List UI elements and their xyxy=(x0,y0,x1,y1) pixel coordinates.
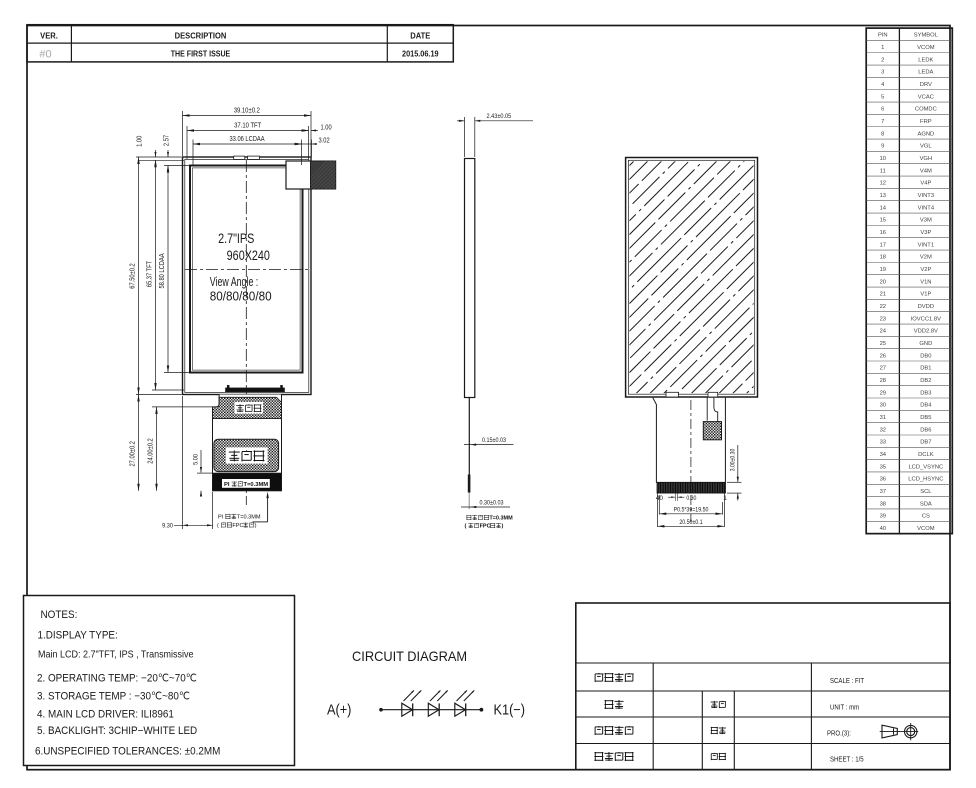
svg-text:0.30±0.03: 0.30±0.03 xyxy=(480,500,505,507)
svg-text:DESCRIPTION: DESCRIPTION xyxy=(175,31,227,41)
svg-text:19: 19 xyxy=(880,267,886,273)
svg-text:12: 12 xyxy=(880,181,886,187)
svg-text:2015.06.19: 2015.06.19 xyxy=(402,49,439,59)
svg-text:V2M: V2M xyxy=(920,255,932,261)
svg-text:V3M: V3M xyxy=(920,218,932,224)
svg-text:23: 23 xyxy=(880,316,886,322)
svg-text:10: 10 xyxy=(880,156,886,162)
svg-text:DB6: DB6 xyxy=(920,427,931,433)
svg-text:VCOM: VCOM xyxy=(917,526,935,532)
svg-text:SHEET : 1/5: SHEET : 1/5 xyxy=(830,756,864,764)
svg-text:SCALE : FIT: SCALE : FIT xyxy=(830,677,865,685)
svg-text:35: 35 xyxy=(880,464,886,470)
svg-text:39.10±0.2: 39.10±0.2 xyxy=(234,107,261,115)
svg-text:VINT3: VINT3 xyxy=(918,193,934,199)
svg-text:#0: #0 xyxy=(39,49,51,61)
svg-text:3.02: 3.02 xyxy=(319,137,331,145)
svg-text:CIRCUIT DIAGRAM: CIRCUIT DIAGRAM xyxy=(352,649,467,664)
svg-text:39: 39 xyxy=(880,514,886,520)
svg-text:VCOM: VCOM xyxy=(917,45,935,51)
svg-text:V4P: V4P xyxy=(920,181,931,187)
svg-text:8: 8 xyxy=(881,131,884,137)
svg-text:V2P: V2P xyxy=(920,267,931,273)
svg-text:THE FIRST ISSUE: THE FIRST ISSUE xyxy=(171,49,231,59)
svg-text:IOVCC1.8V: IOVCC1.8V xyxy=(911,316,941,322)
svg-text:DB2: DB2 xyxy=(920,378,931,384)
svg-text:SDA: SDA xyxy=(920,501,932,507)
svg-text:GND: GND xyxy=(919,341,932,347)
svg-text:6.UNSPECIFIED TOLERANCES: ±0.2: 6.UNSPECIFIED TOLERANCES: ±0.2MM xyxy=(35,746,220,758)
svg-text:FRP: FRP xyxy=(920,119,932,125)
svg-text:58.80 LCDAA: 58.80 LCDAA xyxy=(159,253,167,289)
svg-text:5: 5 xyxy=(881,94,884,100)
svg-text:37.10 TFT: 37.10 TFT xyxy=(234,122,261,130)
svg-text:VGL: VGL xyxy=(920,144,932,150)
svg-text:SCL: SCL xyxy=(920,489,932,495)
svg-text:37: 37 xyxy=(880,489,886,495)
svg-text:15: 15 xyxy=(880,218,886,224)
svg-text:VDD2.8V: VDD2.8V xyxy=(914,329,938,335)
svg-text:T=0.3MM: T=0.3MM xyxy=(243,482,268,488)
svg-text:65.37 TFT: 65.37 TFT xyxy=(146,261,154,287)
svg-text:VINT4: VINT4 xyxy=(918,205,935,211)
svg-text:DB1: DB1 xyxy=(920,366,931,372)
svg-text:2.43±0.05: 2.43±0.05 xyxy=(487,113,512,121)
svg-text:29: 29 xyxy=(880,390,886,396)
svg-text:COMDC: COMDC xyxy=(915,107,937,113)
svg-text:UNIT : mm: UNIT : mm xyxy=(830,704,859,712)
svg-text:(: ( xyxy=(217,523,219,529)
svg-text:3. STORAGE TEMP : −30℃~80℃: 3. STORAGE TEMP : −30℃~80℃ xyxy=(37,691,190,703)
svg-text:24: 24 xyxy=(880,329,887,335)
svg-text:2.7"IPS: 2.7"IPS xyxy=(218,231,254,246)
svg-text:NOTES:: NOTES: xyxy=(41,610,78,622)
svg-text:1.00: 1.00 xyxy=(321,124,333,132)
svg-text:VINT1: VINT1 xyxy=(918,242,934,248)
svg-text:34: 34 xyxy=(880,452,887,458)
svg-text:PI: PI xyxy=(218,515,224,521)
svg-text:2.57: 2.57 xyxy=(163,135,171,147)
svg-text:7: 7 xyxy=(881,119,884,125)
svg-text:27.00±0.2: 27.00±0.2 xyxy=(129,441,137,467)
svg-text:33: 33 xyxy=(880,440,886,446)
svg-text:SYMBOL: SYMBOL xyxy=(914,33,939,39)
svg-text:LCD_VSYNC: LCD_VSYNC xyxy=(908,464,943,470)
svg-text:View Angle :: View Angle : xyxy=(210,275,258,289)
svg-text:V1P: V1P xyxy=(920,292,931,298)
svg-text:0.30: 0.30 xyxy=(686,495,696,502)
svg-text:1.00: 1.00 xyxy=(136,135,144,147)
svg-text:20.50±0.1: 20.50±0.1 xyxy=(679,519,702,526)
svg-text:CS: CS xyxy=(922,514,930,520)
svg-text:T=0.3MM: T=0.3MM xyxy=(237,515,261,521)
svg-text:6: 6 xyxy=(881,107,884,113)
svg-text:5.00: 5.00 xyxy=(192,454,200,465)
svg-text:PIN: PIN xyxy=(878,33,888,39)
svg-text:9: 9 xyxy=(881,144,884,150)
svg-text:30: 30 xyxy=(880,403,886,409)
svg-text:4. MAIN LCD DRIVER: ILI8961: 4. MAIN LCD DRIVER: ILI8961 xyxy=(37,709,174,721)
svg-text:40: 40 xyxy=(880,526,886,532)
svg-text:1: 1 xyxy=(723,495,727,502)
svg-text:960X240: 960X240 xyxy=(227,248,270,263)
svg-text:21: 21 xyxy=(880,292,886,298)
svg-text:AGND: AGND xyxy=(917,131,934,137)
svg-text:27: 27 xyxy=(880,366,886,372)
svg-text:LEDK: LEDK xyxy=(918,57,933,63)
svg-text:24.00±0.2: 24.00±0.2 xyxy=(147,438,155,464)
svg-text:26: 26 xyxy=(880,353,886,359)
svg-text:1.DISPLAY TYPE:: 1.DISPLAY TYPE: xyxy=(38,630,118,642)
svg-text:Main LCD: 2.7"TFT, IPS , Trans: Main LCD: 2.7"TFT, IPS , Transmissive xyxy=(38,649,194,661)
svg-text:V3P: V3P xyxy=(920,230,931,236)
svg-text:VGH: VGH xyxy=(920,156,933,162)
svg-text:20: 20 xyxy=(880,279,886,285)
svg-text:13: 13 xyxy=(880,193,886,199)
svg-text:): ) xyxy=(501,524,503,530)
svg-text:80/80/80/80: 80/80/80/80 xyxy=(210,289,272,304)
svg-text:0.15±0.03: 0.15±0.03 xyxy=(482,438,507,445)
svg-text:14: 14 xyxy=(880,205,887,211)
svg-text:PI: PI xyxy=(224,482,230,488)
svg-text:67.50±0.2: 67.50±0.2 xyxy=(129,263,137,289)
svg-text:VCAC: VCAC xyxy=(918,94,934,100)
svg-text:18: 18 xyxy=(880,255,886,261)
svg-text:T=0.3MM: T=0.3MM xyxy=(489,516,513,522)
svg-text:3: 3 xyxy=(881,70,884,76)
svg-text:11: 11 xyxy=(880,168,886,174)
svg-text:DB4: DB4 xyxy=(920,403,932,409)
svg-text:V4M: V4M xyxy=(920,168,932,174)
svg-text:32: 32 xyxy=(880,427,886,433)
svg-text:25: 25 xyxy=(880,341,886,347)
svg-text:A(+): A(+) xyxy=(327,702,351,718)
svg-text:DRV: DRV xyxy=(920,82,932,88)
svg-text:LCD_HSYNC: LCD_HSYNC xyxy=(908,477,943,483)
svg-text:36: 36 xyxy=(880,477,886,483)
svg-text:P0.5*39=19.50: P0.5*39=19.50 xyxy=(674,507,709,514)
svg-text:(: ( xyxy=(465,524,467,530)
svg-text:DCLK: DCLK xyxy=(918,452,934,458)
svg-text:FPC: FPC xyxy=(480,524,491,530)
svg-text:FPC: FPC xyxy=(232,523,243,529)
svg-text:17: 17 xyxy=(880,242,886,248)
svg-text:31: 31 xyxy=(880,415,886,421)
svg-text:DB0: DB0 xyxy=(920,353,931,359)
svg-text:2. OPERATING TEMP: −20℃~70℃: 2. OPERATING TEMP: −20℃~70℃ xyxy=(37,673,197,685)
svg-text:38: 38 xyxy=(880,501,886,507)
svg-text:1: 1 xyxy=(881,45,884,51)
svg-text:3.00±0.30: 3.00±0.30 xyxy=(730,449,737,472)
svg-text:9.30: 9.30 xyxy=(162,522,173,530)
svg-text:DVDD: DVDD xyxy=(918,304,934,310)
svg-text:VER.: VER. xyxy=(40,31,58,41)
svg-text:DB7: DB7 xyxy=(920,440,931,446)
svg-text:): ) xyxy=(255,523,257,529)
svg-text:DATE: DATE xyxy=(410,31,431,41)
svg-text:2: 2 xyxy=(881,57,884,63)
svg-text:DB3: DB3 xyxy=(920,390,931,396)
svg-text:K1(−): K1(−) xyxy=(494,702,526,718)
svg-text:5. BACKLIGHT: 3CHIP−WHITE LED: 5. BACKLIGHT: 3CHIP−WHITE LED xyxy=(37,726,198,738)
svg-text:33.06 LCDAA: 33.06 LCDAA xyxy=(229,136,265,144)
svg-text:PRO.(3):: PRO.(3): xyxy=(827,730,851,738)
svg-text:DB5: DB5 xyxy=(920,415,931,421)
svg-text:V1N: V1N xyxy=(920,279,931,285)
svg-text:22: 22 xyxy=(880,304,886,310)
svg-text:16: 16 xyxy=(880,230,886,236)
svg-text:LEDA: LEDA xyxy=(918,70,933,76)
svg-text:28: 28 xyxy=(880,378,886,384)
